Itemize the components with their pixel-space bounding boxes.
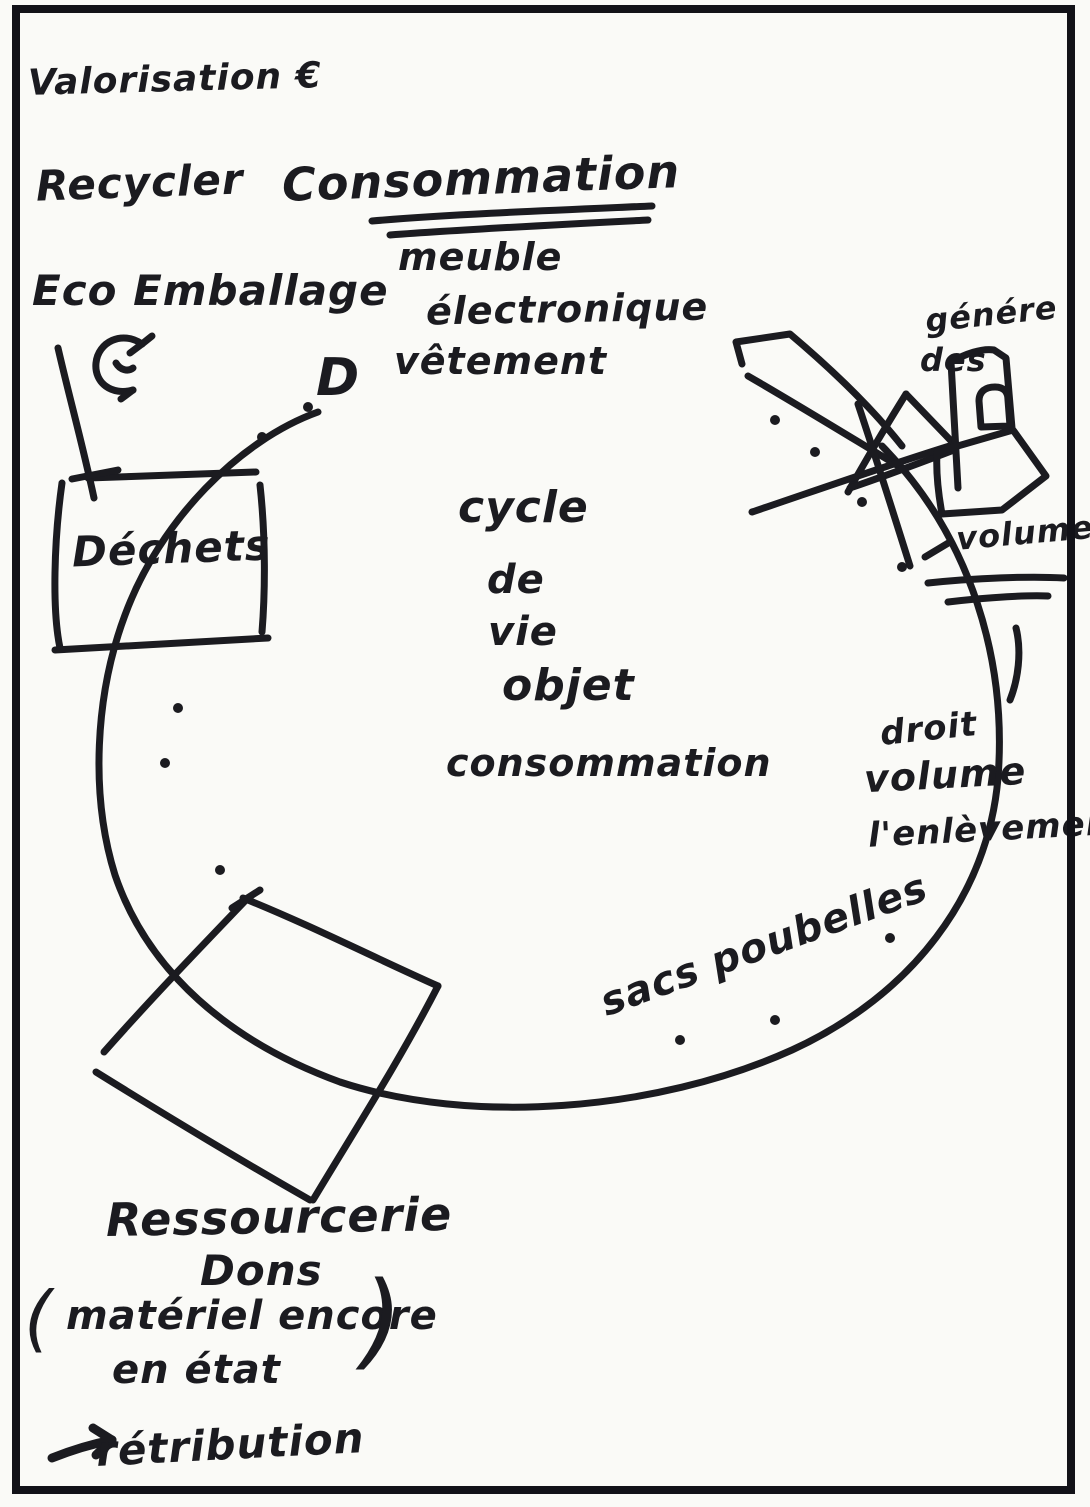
label-vie: vie	[488, 612, 558, 652]
label-de: de	[487, 560, 545, 600]
label-dechets: Déchets	[71, 525, 271, 574]
label-d: D	[316, 352, 360, 404]
label-eco-emballage: Eco Emballage	[32, 270, 389, 312]
label-cycle: cycle	[458, 486, 589, 530]
recycle-icon	[96, 336, 152, 399]
paren-close: )	[362, 1268, 404, 1372]
whiteboard-sketch-page: Valorisation € Recycler Consommation meu…	[0, 0, 1090, 1507]
label-volume: volume	[863, 752, 1027, 798]
label-recycler: Recycler	[35, 158, 244, 207]
label-en-etat: en état	[112, 1350, 281, 1390]
label-ressourcerie: Ressourcerie	[106, 1191, 453, 1243]
label-electronique: électronique	[426, 288, 709, 331]
label-des: des	[920, 344, 987, 376]
label-dons: Dons	[200, 1250, 323, 1292]
label-consommation: Consommation	[281, 148, 680, 208]
paren-open: (	[24, 1282, 53, 1354]
label-consommation-center: consommation	[446, 744, 772, 782]
consommation-underline	[372, 206, 652, 235]
label-droit: droit	[878, 707, 978, 751]
label-objet: objet	[502, 664, 635, 708]
label-valorisation: Valorisation €	[28, 58, 323, 102]
label-meuble: meuble	[398, 238, 562, 276]
label-vetement: vêtement	[394, 342, 607, 380]
